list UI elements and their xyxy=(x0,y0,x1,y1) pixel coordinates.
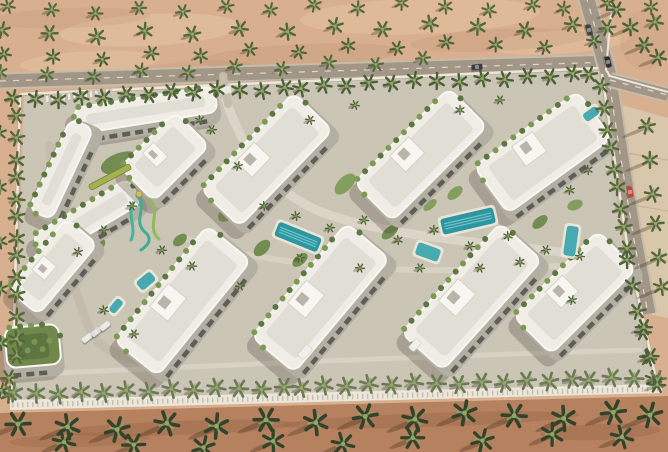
palm-crown xyxy=(571,23,574,26)
palm-crown xyxy=(412,381,416,385)
palm-crown xyxy=(48,32,51,35)
palm-crown xyxy=(101,58,104,61)
palm-crown xyxy=(238,88,241,91)
palm-crown xyxy=(239,285,241,287)
palm-crown xyxy=(15,198,18,201)
palm-crown xyxy=(15,276,18,279)
palm-crown xyxy=(603,106,606,109)
palm-crown xyxy=(7,376,10,379)
palm-crown xyxy=(519,261,521,263)
palm-crown xyxy=(102,96,105,99)
palm-crown xyxy=(648,158,651,161)
palm-crown xyxy=(96,35,99,38)
palm-crown xyxy=(571,299,573,301)
palm-crown xyxy=(79,390,83,394)
palm-crown xyxy=(570,377,574,381)
palm-crown xyxy=(298,51,301,54)
palm-crown xyxy=(422,57,425,60)
palm-crown xyxy=(237,165,239,167)
palm-crown xyxy=(651,192,654,195)
palm-crown xyxy=(15,315,18,318)
palm-crown xyxy=(34,392,38,396)
palm-crown xyxy=(214,424,219,429)
palm-crown xyxy=(57,393,61,397)
palm-crown xyxy=(161,249,163,251)
palm-crown xyxy=(612,168,615,171)
palm-crown xyxy=(569,189,571,191)
palm-crown xyxy=(622,225,625,228)
palm-crown xyxy=(549,75,552,78)
palm-crown xyxy=(660,285,663,288)
palm-crown xyxy=(435,382,439,386)
palm-crown xyxy=(363,414,368,419)
palm-crown xyxy=(164,421,169,426)
palm-crown xyxy=(632,377,636,381)
palm-crown xyxy=(397,239,399,241)
palm-crown xyxy=(147,93,150,96)
palm-crown xyxy=(299,87,302,90)
palm-crown xyxy=(620,435,624,439)
palm-crown xyxy=(50,8,53,11)
palm-crown xyxy=(488,9,491,12)
palm-crown xyxy=(225,5,228,8)
palm-crown xyxy=(616,185,619,188)
palm-crown xyxy=(545,249,547,251)
palm-crown xyxy=(654,222,657,225)
palm-crown xyxy=(313,3,316,6)
palm-crown xyxy=(562,7,565,10)
palm-crown xyxy=(140,69,143,72)
palm-crown xyxy=(433,229,435,231)
palm-crown xyxy=(15,175,18,178)
palm-crown xyxy=(363,219,365,221)
palm-crown xyxy=(102,391,106,395)
palm-crown xyxy=(457,383,461,387)
palm-crown xyxy=(138,7,141,10)
palm-crown xyxy=(15,214,18,217)
palm-crown xyxy=(643,43,646,46)
palm-crown xyxy=(170,90,173,93)
palm-crown xyxy=(131,205,133,207)
palm-crown xyxy=(444,5,447,8)
palm-crown xyxy=(375,63,378,66)
palm-crown xyxy=(657,56,660,59)
palm-crown xyxy=(503,78,506,81)
palm-crown xyxy=(283,86,286,89)
palm-crown xyxy=(125,92,128,95)
palm-crown xyxy=(238,27,241,30)
slide-tower xyxy=(136,191,142,197)
palm-crown xyxy=(15,159,18,162)
palm-crown xyxy=(502,381,506,385)
palm-crown xyxy=(396,47,399,50)
facade-window xyxy=(39,370,47,375)
palm-crown xyxy=(480,438,484,442)
palm-crown xyxy=(261,89,264,92)
palm-crown xyxy=(606,128,609,131)
palm-crown xyxy=(413,417,418,422)
render-canvas xyxy=(0,0,668,452)
palm-crown xyxy=(458,80,461,83)
palm-crown xyxy=(199,54,202,57)
palm-crown xyxy=(411,436,415,440)
palm-crown xyxy=(333,24,336,27)
palm-crown xyxy=(462,411,467,416)
palm-crown xyxy=(234,65,237,68)
palm-crown xyxy=(657,256,660,259)
palm-crown xyxy=(625,247,628,250)
palm-crown xyxy=(531,4,534,7)
palm-crown xyxy=(480,380,484,384)
palm-crown xyxy=(15,337,18,340)
palm-crown xyxy=(587,169,589,171)
palm-crown xyxy=(260,388,264,392)
palm-crown xyxy=(629,26,632,29)
palm-crown xyxy=(133,333,135,335)
palm-crown xyxy=(593,40,596,43)
palm-crown xyxy=(459,109,461,111)
palm-crown xyxy=(62,440,66,444)
palm-crown xyxy=(512,413,517,418)
palm-crown xyxy=(619,207,622,210)
palm-crown xyxy=(211,129,213,131)
palm-crown xyxy=(124,389,128,393)
palm-crown xyxy=(150,52,153,55)
palm-crown xyxy=(429,22,432,25)
palm-crown xyxy=(65,424,70,429)
palm-crown xyxy=(143,29,146,32)
palm-crown xyxy=(400,2,403,5)
palm-crown xyxy=(299,257,301,259)
palm-crown xyxy=(15,237,18,240)
palm-crown xyxy=(269,9,272,12)
palm-crown xyxy=(606,2,609,5)
palm-crown xyxy=(653,20,656,23)
palm-crown xyxy=(93,75,96,78)
palm-crown xyxy=(610,376,614,380)
palm-crown xyxy=(649,354,652,357)
palm-crown xyxy=(636,310,639,313)
palm-crown xyxy=(15,293,18,296)
palm-crown xyxy=(548,380,552,384)
palm-crown xyxy=(201,445,205,449)
palm-crown xyxy=(46,73,49,76)
palm-crown xyxy=(281,67,284,70)
palm-crown xyxy=(579,255,581,257)
palm-crown xyxy=(215,87,218,90)
aerial-compound-render xyxy=(0,0,668,452)
palm-crown xyxy=(367,81,370,84)
palm-crown xyxy=(345,84,348,87)
palm-crown xyxy=(115,427,120,432)
palm-crown xyxy=(561,416,566,421)
palm-crown xyxy=(354,104,356,106)
car-roof-glass xyxy=(475,65,480,70)
palm-crown xyxy=(381,28,384,31)
facade-window xyxy=(26,371,34,376)
palm-crown xyxy=(79,95,82,98)
palm-crown xyxy=(469,245,471,247)
palm-crown xyxy=(300,386,304,390)
palm-crown xyxy=(445,41,448,44)
palm-crown xyxy=(132,443,136,447)
palm-crown xyxy=(345,385,349,389)
palm-crown xyxy=(341,442,345,446)
palm-crown xyxy=(15,354,18,357)
palm-crown xyxy=(648,413,653,418)
palm-crown xyxy=(94,12,97,15)
palm-crown xyxy=(329,227,331,229)
palm-crown xyxy=(645,124,648,127)
palm-crown xyxy=(57,98,60,101)
palm-crown xyxy=(11,96,14,99)
palm-crown xyxy=(103,229,105,231)
palm-crown xyxy=(12,391,16,395)
palm-crown xyxy=(264,417,269,422)
palm-crown xyxy=(390,82,393,85)
palm-crown xyxy=(237,387,241,391)
palm-crown xyxy=(192,388,196,392)
palm-crown xyxy=(263,205,265,207)
palm-crown xyxy=(309,119,311,121)
palm-crown xyxy=(609,146,612,149)
palm-crown xyxy=(524,29,527,32)
palm-crown xyxy=(322,83,325,86)
palm-crown xyxy=(615,8,618,11)
palm-crown xyxy=(587,73,590,76)
palm-crown xyxy=(526,74,529,77)
palm-crown xyxy=(599,84,602,87)
palm-crown xyxy=(52,55,55,58)
palm-crown xyxy=(606,26,609,29)
palm-crown xyxy=(191,265,193,267)
palm-crown xyxy=(499,99,501,101)
palm-crown xyxy=(170,387,174,391)
palm-crown xyxy=(356,7,359,10)
palm-crown xyxy=(359,267,361,269)
palm-crown xyxy=(587,378,591,382)
palm-crown xyxy=(525,379,529,383)
palm-crown xyxy=(611,410,616,415)
palm-crown xyxy=(656,383,659,386)
palm-crown xyxy=(313,420,318,425)
sand-patch xyxy=(620,10,668,70)
palm-crown xyxy=(147,390,151,394)
palm-crown xyxy=(15,114,18,117)
palm-crown xyxy=(650,6,653,9)
palm-crown xyxy=(282,385,286,389)
palm-crown xyxy=(191,33,194,36)
palm-crown xyxy=(0,28,3,31)
palm-crown xyxy=(435,79,438,82)
palm-crown xyxy=(347,44,350,47)
palm-crown xyxy=(3,53,6,56)
palm-crown xyxy=(187,71,190,74)
palm-crown xyxy=(413,78,416,81)
palm-crown xyxy=(367,382,371,386)
palm-crown xyxy=(625,258,628,261)
palm-crown xyxy=(7,5,10,8)
palm-crown xyxy=(494,43,497,46)
palm-crown xyxy=(182,10,185,13)
palm-crown xyxy=(481,77,484,80)
palm-crown xyxy=(571,72,574,75)
palm-crown xyxy=(271,439,275,443)
palm-crown xyxy=(642,326,645,329)
palm-crown xyxy=(507,235,509,237)
palm-crown xyxy=(419,267,421,269)
palm-crown xyxy=(215,386,219,390)
palm-crown xyxy=(550,432,554,436)
palm-crown xyxy=(390,383,394,387)
palm-crown xyxy=(15,136,18,139)
palm-crown xyxy=(295,215,297,217)
palm-crown xyxy=(322,384,326,388)
palm-crown xyxy=(199,119,201,121)
palm-crown xyxy=(476,25,479,28)
palm-crown xyxy=(15,254,18,257)
palm-crown xyxy=(16,422,21,427)
palm-crown xyxy=(286,30,289,33)
palm-crown xyxy=(193,91,196,94)
palm-crown xyxy=(328,61,331,64)
palm-crown xyxy=(248,48,251,51)
palm-crown xyxy=(103,309,105,311)
palm-crown xyxy=(631,284,634,287)
palm-crown xyxy=(34,97,37,100)
palm-crown xyxy=(77,251,79,253)
palm-crown xyxy=(479,267,481,269)
palm-crown xyxy=(543,46,546,49)
